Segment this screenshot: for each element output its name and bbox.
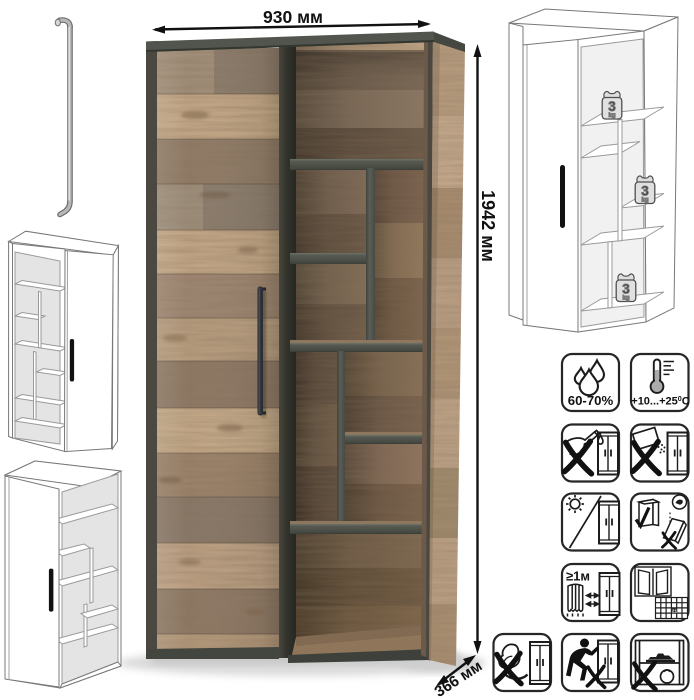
svg-text:21: 21 [672, 609, 678, 614]
svg-text:≥1м: ≥1м [566, 569, 590, 584]
svg-text:1942 мм: 1942 мм [478, 190, 498, 262]
svg-text:930 мм: 930 мм [263, 7, 323, 27]
svg-text:+10...+250С: +10...+250С [631, 394, 690, 408]
svg-text:60-70%: 60-70% [568, 393, 614, 408]
